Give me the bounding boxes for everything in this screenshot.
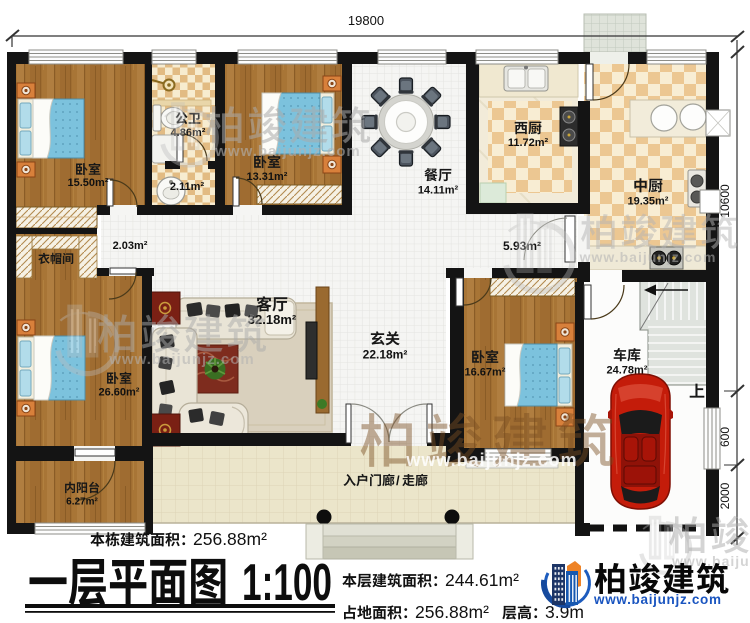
- svg-text:www.baijunjz.com: www.baijunjz.com: [108, 351, 254, 368]
- svg-text:www.baijunjz.com: www.baijunjz.com: [214, 143, 360, 160]
- svg-text:600: 600: [718, 427, 732, 447]
- svg-text:24.78m²: 24.78m²: [607, 365, 648, 377]
- svg-text:www.baijunjz.com: www.baijunjz.com: [405, 450, 577, 470]
- svg-text:/: /: [396, 473, 400, 488]
- svg-text:2000: 2000: [718, 482, 732, 509]
- svg-text:www.baijunjz.com: www.baijunjz.com: [593, 592, 722, 607]
- svg-text:2.03m²: 2.03m²: [113, 240, 148, 252]
- svg-text:19800: 19800: [348, 13, 384, 28]
- svg-text:6.27m²: 6.27m²: [66, 497, 98, 508]
- svg-text:26.60m²: 26.60m²: [99, 387, 140, 399]
- svg-text:10600: 10600: [718, 184, 732, 218]
- svg-text:15.50m²: 15.50m²: [68, 177, 109, 189]
- svg-text:19.35m²: 19.35m²: [628, 196, 669, 208]
- svg-text:22.18m²: 22.18m²: [363, 348, 408, 362]
- svg-text:www.baijunjz.com: www.baijunjz.com: [579, 249, 717, 265]
- svg-text:16.67m²: 16.67m²: [465, 367, 506, 379]
- svg-text:11.72m²: 11.72m²: [508, 137, 549, 149]
- svg-text:14.11m²: 14.11m²: [418, 185, 459, 197]
- svg-text:1:100: 1:100: [242, 554, 332, 612]
- svg-text:244.61m²: 244.61m²: [445, 570, 519, 590]
- svg-text:256.88m²: 256.88m²: [415, 602, 489, 622]
- svg-text:13.31m²: 13.31m²: [247, 171, 288, 183]
- svg-text:2.11m²: 2.11m²: [170, 181, 205, 193]
- svg-text:256.88m²: 256.88m²: [193, 529, 267, 549]
